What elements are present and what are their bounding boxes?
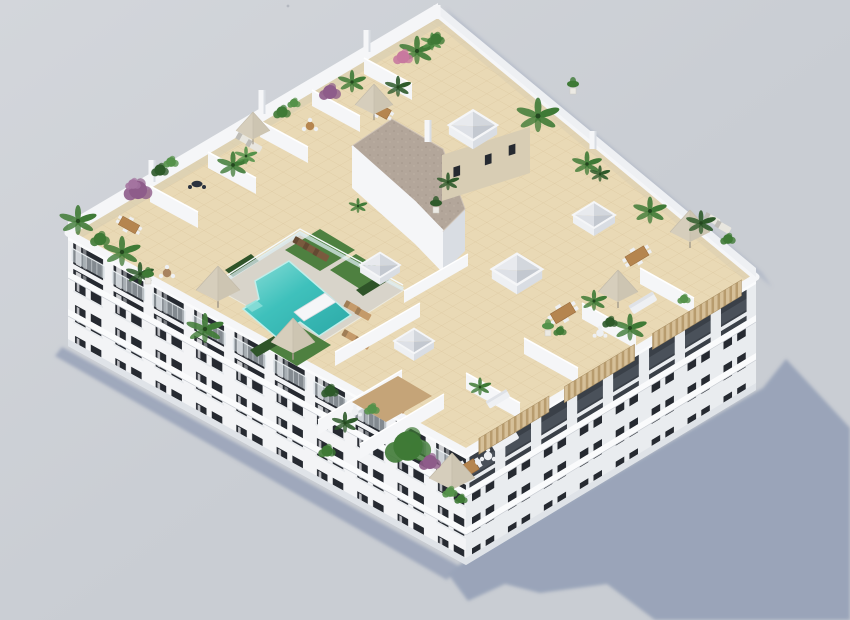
render-canvas bbox=[0, 0, 850, 620]
dust-speck bbox=[287, 5, 290, 8]
rooftop-render bbox=[0, 0, 850, 620]
pouf bbox=[475, 459, 481, 465]
